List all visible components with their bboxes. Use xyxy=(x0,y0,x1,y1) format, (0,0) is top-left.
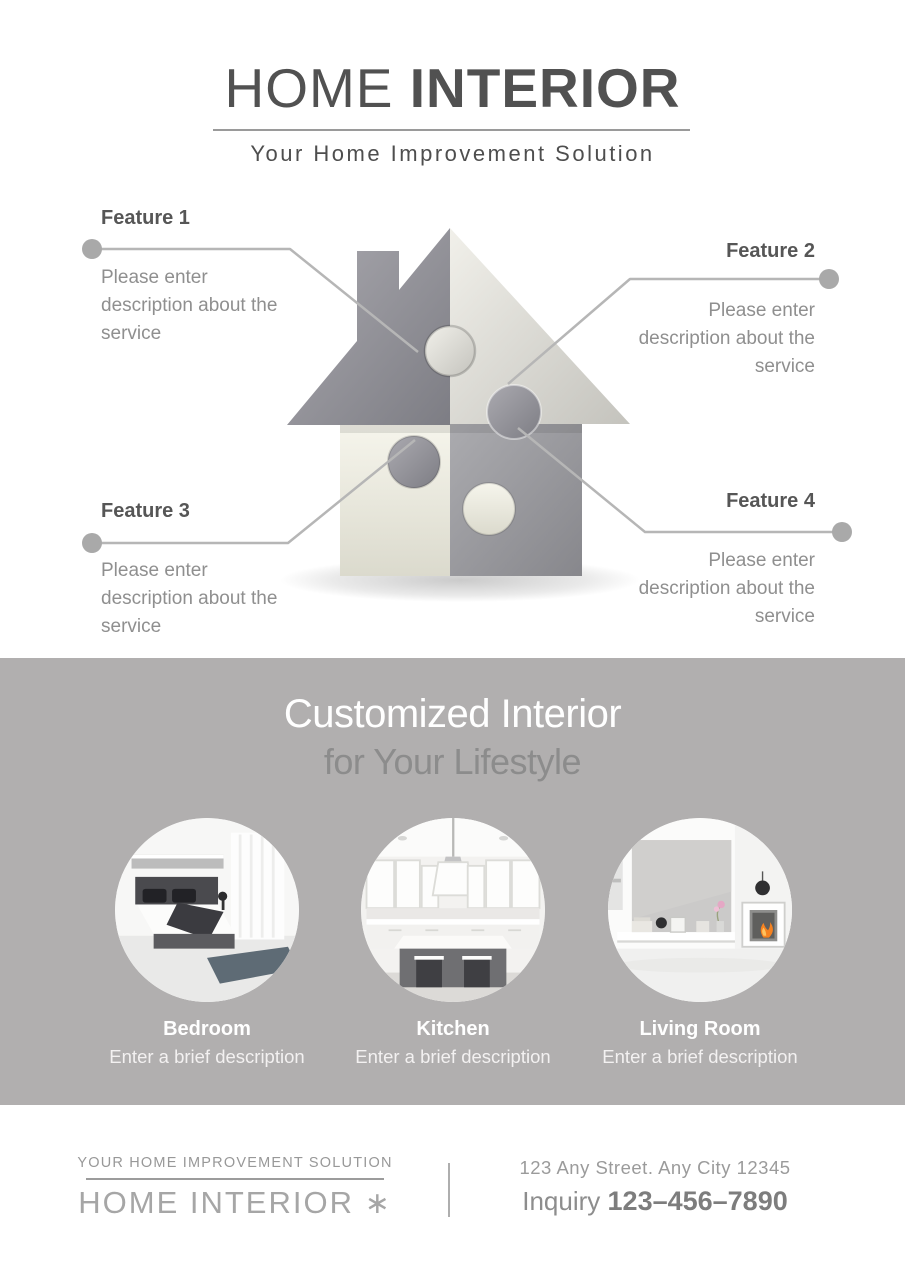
brand-word-bold: INTERIOR xyxy=(410,57,681,119)
puzzle-knob xyxy=(425,326,475,376)
footer-logo-block: YOUR HOME IMPROVEMENT SOLUTION HOME INTE… xyxy=(35,1155,435,1221)
feature-description: Please enter description about the servi… xyxy=(101,264,281,348)
showcase-heading-line2: for Your Lifestyle xyxy=(0,741,905,783)
feature-title: Feature 3 xyxy=(101,500,331,523)
title-divider-line xyxy=(213,129,690,131)
asterisk-logo-icon: ∗ xyxy=(365,1187,392,1220)
puzzle-knob xyxy=(388,436,440,488)
feature-description: Please enter description about the servi… xyxy=(625,297,815,381)
feature-description: Please enter description about the servi… xyxy=(625,547,815,631)
room-description: Enter a brief description xyxy=(67,1046,347,1068)
showcase-heading-line1: Customized Interior xyxy=(0,692,905,737)
room-card-kitchen: Kitchen Enter a brief description xyxy=(361,818,545,1002)
phone-number: 123–456–7890 xyxy=(608,1186,788,1216)
connector-dot xyxy=(82,239,102,259)
footer-address: 123 Any Street. Any City 12345 xyxy=(455,1157,855,1179)
room-name: Kitchen xyxy=(313,1018,593,1041)
connector-dot xyxy=(832,522,852,542)
feature-title: Feature 4 xyxy=(585,490,815,513)
feature-callout-1: Feature 1 Please enter description about… xyxy=(101,207,331,348)
connector-dot xyxy=(82,533,102,553)
inquiry-label: Inquiry xyxy=(522,1186,600,1216)
footer-brand: HOME INTERIOR ∗ xyxy=(35,1185,435,1221)
footer-vertical-divider xyxy=(448,1163,450,1217)
puzzle-knob xyxy=(487,385,541,439)
feature-callout-2: Feature 2 Please enter description about… xyxy=(585,240,815,381)
room-description: Enter a brief description xyxy=(560,1046,840,1068)
footer-inquiry: Inquiry 123–456–7890 xyxy=(455,1186,855,1217)
feature-callout-4: Feature 4 Please enter description about… xyxy=(585,490,815,631)
feature-description: Please enter description about the servi… xyxy=(101,557,281,641)
brand-word-light: HOME xyxy=(224,57,393,119)
puzzle-piece-wall-left xyxy=(340,424,450,576)
room-description: Enter a brief description xyxy=(313,1046,593,1068)
footer-logo-divider-line xyxy=(86,1178,384,1180)
puzzle-piece-wall-right xyxy=(450,424,582,576)
feature-title: Feature 1 xyxy=(101,207,331,230)
footer-tagline: YOUR HOME IMPROVEMENT SOLUTION xyxy=(35,1155,435,1171)
header-tagline: Your Home Improvement Solution xyxy=(0,141,905,167)
footer-contact-block: 123 Any Street. Any City 12345 Inquiry 1… xyxy=(455,1157,855,1217)
puzzle-knob xyxy=(463,483,515,535)
connector-dot xyxy=(819,269,839,289)
kitchen-photo xyxy=(361,818,545,1002)
room-card-bedroom: Bedroom Enter a brief description xyxy=(115,818,299,1002)
living-room-photo xyxy=(608,818,792,1002)
bedroom-photo xyxy=(115,818,299,1002)
feature-title: Feature 2 xyxy=(585,240,815,263)
room-name: Living Room xyxy=(560,1018,840,1041)
footer-brand-text: HOME INTERIOR xyxy=(78,1185,354,1220)
room-card-living-room: Living Room Enter a brief description xyxy=(608,818,792,1002)
feature-callout-3: Feature 3 Please enter description about… xyxy=(101,500,331,641)
page-title: HOME INTERIOR xyxy=(0,56,905,120)
room-name: Bedroom xyxy=(67,1018,347,1041)
